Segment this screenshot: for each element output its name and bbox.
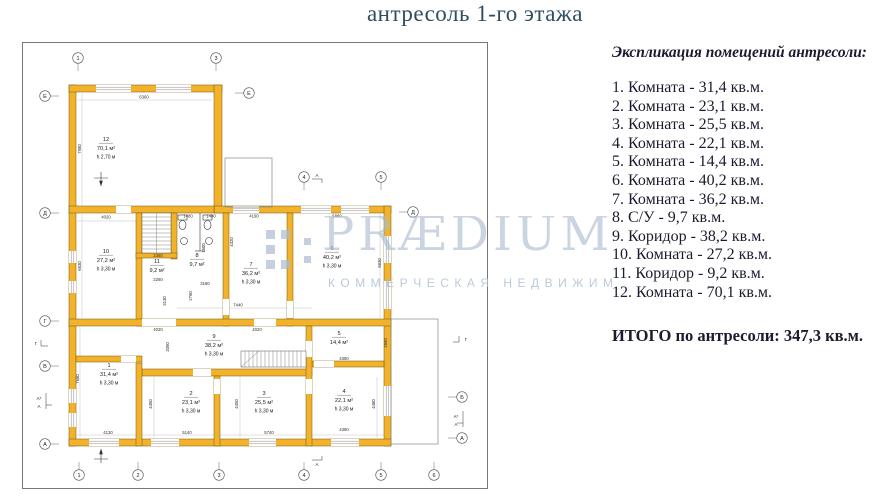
axis-bottom-3: 3 xyxy=(214,462,225,480)
room-area: 14,4 м² xyxy=(330,340,348,346)
room-label-7: 7 36,2 м² h 3,30 м xyxy=(242,262,261,286)
page: антресоль 1-го этажа xyxy=(0,0,875,500)
axis-top-5: 5 xyxy=(376,172,387,190)
dim-label: 5140 xyxy=(182,430,192,435)
room-label-5: 5 14,4 м² xyxy=(330,331,348,346)
floor-plan-frame: 12 70,1 м² h 2,70 м 10 27,2 м² h 3,30 м … xyxy=(22,42,488,489)
dim-label: 1500 xyxy=(201,243,206,253)
room-area: 9,2 м² xyxy=(149,268,164,274)
room-number: 3 xyxy=(262,391,265,397)
room-height: h 3,30 м xyxy=(182,409,201,415)
room-label-3: 3 25,5 м² h 3,30 м xyxy=(255,391,274,415)
dim-label: 7980 xyxy=(77,144,82,154)
room-number: 7 xyxy=(249,262,252,268)
dim-label: 5880 xyxy=(332,214,342,219)
room-height: h 3,30 м xyxy=(323,264,342,270)
staircase-upper xyxy=(142,213,171,253)
dim-label: 6830 xyxy=(377,258,382,268)
room-number: 11 xyxy=(154,259,160,265)
axis-left-V: В xyxy=(40,361,59,372)
explication-item: 11. Коридор - 9,2 кв.м. xyxy=(612,265,872,284)
room-height: h 3,30 м xyxy=(242,280,261,286)
bathroom-fixtures xyxy=(178,213,213,251)
dim-label: 4020 xyxy=(101,215,111,220)
explication-item: 12. Комната - 70,1 кв.м. xyxy=(612,284,872,303)
axis-label: 3 xyxy=(217,473,220,479)
axis-right-A: А xyxy=(448,433,467,444)
axis-bottom-6: 6 xyxy=(429,462,440,480)
room-area: 25,5 м² xyxy=(255,400,273,406)
dim-label: 2690 xyxy=(383,338,388,348)
axis-right-B: Б xyxy=(448,392,467,403)
room-area: 38,2 м² xyxy=(205,343,223,349)
dim-label: 1480 xyxy=(206,214,216,219)
explication-item: 2. Комната - 23,1 кв.м. xyxy=(612,98,872,117)
explication-item: 3. Комната - 25,5 кв.м. xyxy=(612,116,872,135)
dim-label: 3180 xyxy=(200,281,210,286)
room-number: 1 xyxy=(107,363,110,369)
room-label-10: 10 27,2 м² h 3,30 м xyxy=(97,249,116,273)
explication-total: ИТОГО по антресоли: 347,3 кв.м. xyxy=(612,326,872,346)
page-title: антресоль 1-го этажа xyxy=(330,1,620,27)
dim-label: 2360 xyxy=(153,253,163,258)
room-label-9: 9 38,2 м² h 3,30 м xyxy=(205,334,224,358)
room-area: 27,2 м² xyxy=(97,258,115,264)
dim-label: 4380 xyxy=(339,356,349,361)
dim-label: 4020 xyxy=(153,327,163,332)
dim-label: 4450 xyxy=(148,399,153,409)
dim-label: 4450 xyxy=(234,399,239,409)
room-explication: Экспликация помещений антресоли: 1. Комн… xyxy=(612,44,872,346)
axis-top-4: 4 xyxy=(299,172,310,190)
room-area: 9,7 м² xyxy=(189,262,204,268)
axis-label: Е xyxy=(247,91,251,97)
axis-bottom-4: 4 xyxy=(299,462,310,480)
dim-label: 2090 xyxy=(165,342,170,352)
axis-label: А xyxy=(460,436,464,442)
axis-label: 3 xyxy=(214,56,217,62)
room-area: 40,2 м² xyxy=(323,255,341,261)
room-number: 8 xyxy=(195,253,198,259)
north-arrow-icon xyxy=(94,172,108,186)
explication-item: 8. С/У - 9,7 кв.м. xyxy=(612,209,872,228)
dim-label: 1480 xyxy=(183,214,193,219)
axis-label: 1 xyxy=(77,473,80,479)
room-area: 23,1 м² xyxy=(182,400,200,406)
axis-label: 5 xyxy=(379,175,382,181)
room-height: h 3,30 м xyxy=(97,267,116,273)
dim-label: 4020 xyxy=(252,327,262,332)
section-marker-label: А xyxy=(315,462,318,467)
dim-label: 6630 xyxy=(77,261,82,271)
axis-label: Б xyxy=(460,395,464,401)
room-height: h 2,70 м xyxy=(97,155,116,161)
room-number: 9 xyxy=(212,334,215,340)
room-height: h 3,30 м xyxy=(100,381,119,387)
axis-label: 6 xyxy=(432,473,435,479)
axis-label: Е xyxy=(43,94,47,100)
room-label-6: 6 40,2 м² h 3,30 м xyxy=(323,246,342,270)
dim-label: 4320 xyxy=(229,237,234,247)
explication-item: 4. Комната - 22,1 кв.м. xyxy=(612,135,872,154)
axis-bottom-5: 5 xyxy=(376,462,387,480)
axis-bottom-1: 1 xyxy=(74,462,85,480)
room-area: 36,2 м² xyxy=(242,271,260,277)
explication-item: 9. Коридор - 38,2 кв.м. xyxy=(612,228,872,247)
room-number: 4 xyxy=(342,389,345,395)
dim-label: 2760 xyxy=(188,291,193,301)
axis-left-G: Г xyxy=(40,316,59,327)
dim-label: 4380 xyxy=(339,427,349,432)
explication-item: 7. Комната - 36,2 кв.м. xyxy=(612,191,872,210)
axis-right-E: Е xyxy=(235,88,254,99)
explication-item: 1. Комната - 31,4 кв.м. xyxy=(612,79,872,98)
dim-label: 7680 xyxy=(75,374,80,384)
dim-label: 7440 xyxy=(233,303,243,308)
north-arrow-icon xyxy=(94,450,108,464)
room-number: 2 xyxy=(189,391,192,397)
axis-left-D: Д xyxy=(40,208,59,219)
axis-label: 1 xyxy=(76,56,79,62)
dim-label: 3130 xyxy=(162,296,167,306)
explication-item: 6. Комната - 40,2 кв.м. xyxy=(612,172,872,191)
axis-left-E: Е xyxy=(40,91,59,102)
axis-label: 4 xyxy=(302,473,305,479)
section-marker-label: А* xyxy=(454,414,459,419)
axis-top-3: 3 xyxy=(211,53,222,71)
axis-label: Д xyxy=(411,210,415,216)
dim-label: 4190 xyxy=(249,214,259,219)
explication-item: 5. Комната - 14,4 кв.м. xyxy=(612,153,872,172)
axis-label: 5 xyxy=(379,473,382,479)
axis-label: В xyxy=(43,364,47,370)
axis-label: Д xyxy=(43,211,47,217)
dim-label: 2260 xyxy=(153,277,163,282)
section-marker-label: А* xyxy=(37,396,42,401)
explication-header: Экспликация помещений антресоли: xyxy=(612,44,872,62)
room-height: h 3,30 м xyxy=(335,407,354,413)
dim-label: 6360 xyxy=(139,95,149,100)
room-label-11: 11 9,2 м² xyxy=(149,259,164,274)
room-area: 31,4 м² xyxy=(100,372,118,378)
section-marker-label: Г xyxy=(35,341,38,346)
room-height: h 3,30 м xyxy=(255,409,274,415)
section-marker-label: Г xyxy=(465,337,468,342)
room-label-12: 12 70,1 м² h 2,70 м xyxy=(97,137,116,161)
dim-label: 4130 xyxy=(103,430,113,435)
room-number: 5 xyxy=(337,331,340,337)
room-label-1: 1 31,4 м² h 3,30 м xyxy=(100,363,119,387)
axis-right-D: Д xyxy=(399,207,418,218)
dim-label: 4480 xyxy=(371,399,376,409)
room-number: 6 xyxy=(330,246,333,252)
section-marker-label: А xyxy=(315,173,318,178)
room-height: h 3,30 м xyxy=(205,352,224,358)
staircase-lower xyxy=(241,351,306,367)
axis-label: 2 xyxy=(136,473,139,479)
room-area: 22,1 м² xyxy=(335,398,353,404)
dim-label: 5740 xyxy=(264,430,274,435)
axis-label: Г xyxy=(44,319,47,325)
axis-label: 4 xyxy=(302,175,305,181)
room-number: 12 xyxy=(103,137,109,143)
room-label-8: 8 9,7 м² xyxy=(189,253,204,268)
room-number: 10 xyxy=(103,249,109,255)
room-label-4: 4 22,1 м² h 3,30 м xyxy=(335,389,354,413)
room-area: 70,1 м² xyxy=(97,146,115,152)
explication-item: 10. Комната - 27,2 кв.м. xyxy=(612,246,872,265)
floor-plan-drawing: 12 70,1 м² h 2,70 м 10 27,2 м² h 3,30 м … xyxy=(23,43,487,488)
axis-label: А xyxy=(43,442,47,448)
axis-top-1: 1 xyxy=(73,53,84,71)
section-marker-label: А xyxy=(37,404,40,409)
axis-bottom-2: 2 xyxy=(133,462,144,480)
axis-left-A: А xyxy=(40,439,59,450)
room-label-2: 2 23,1 м² h 3,30 м xyxy=(182,391,201,415)
